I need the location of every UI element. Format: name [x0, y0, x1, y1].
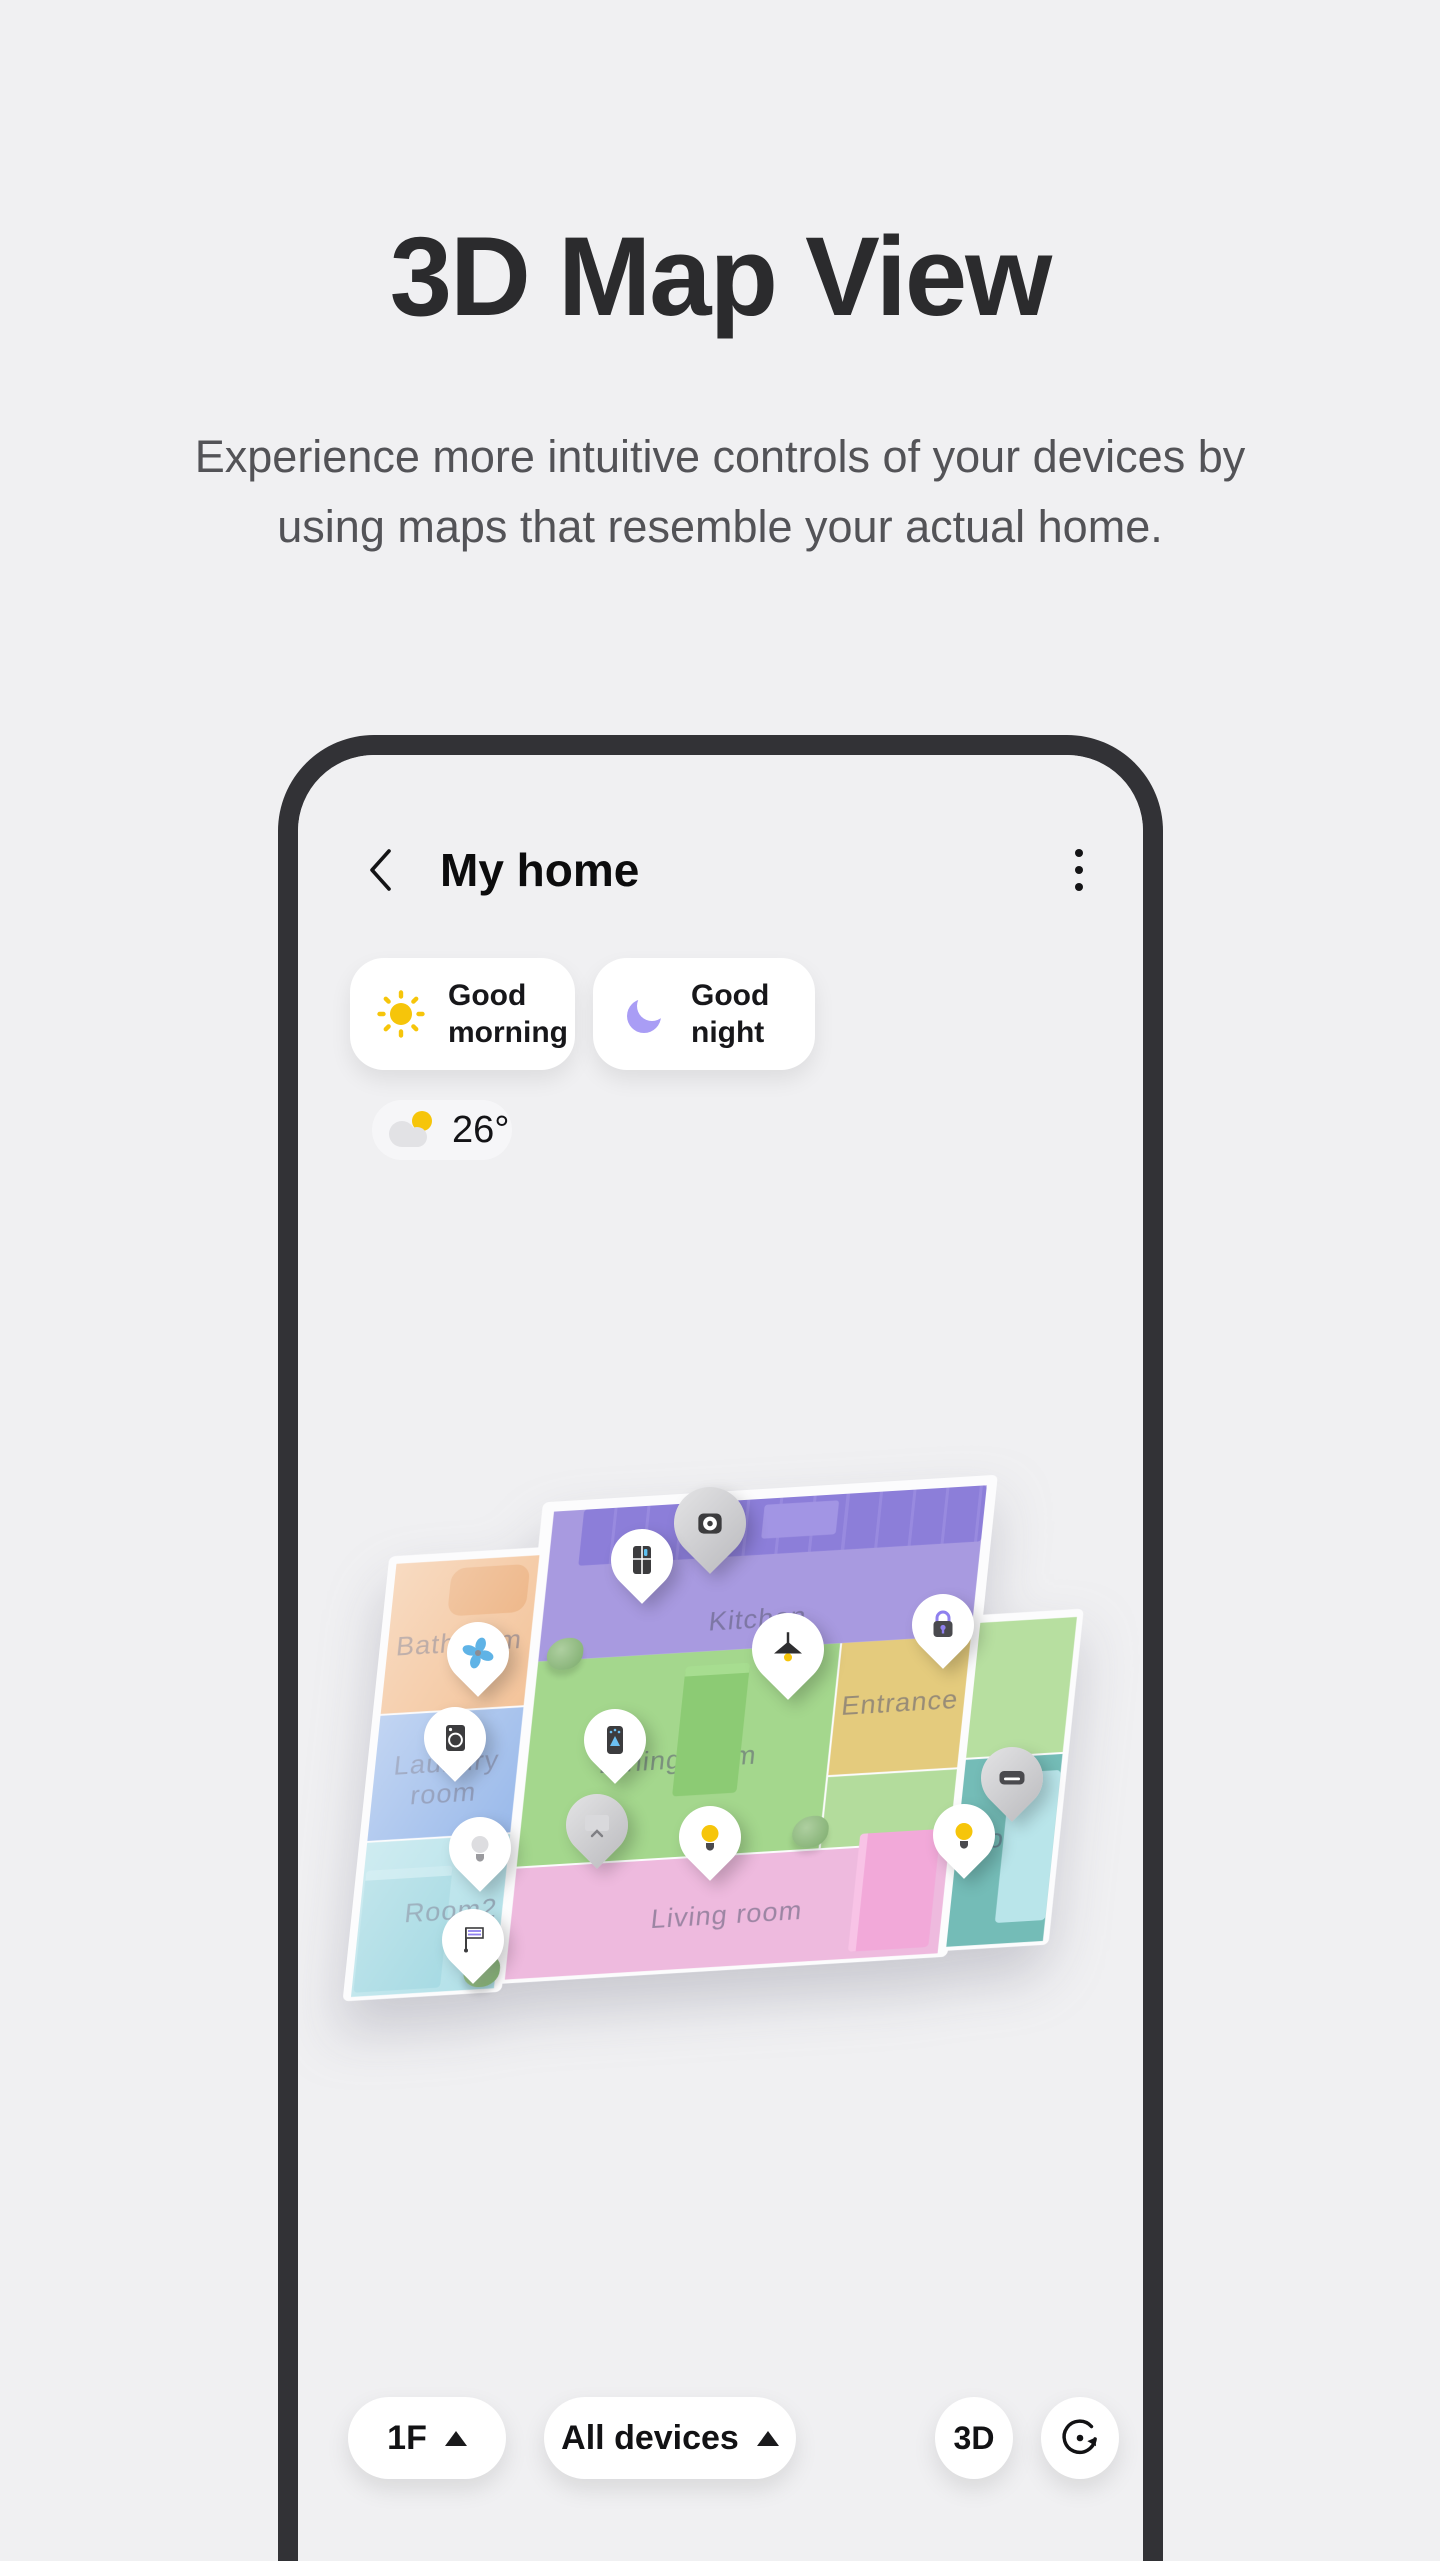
scene-good-morning-button[interactable]: Good morning — [350, 958, 575, 1070]
view-mode-label: 3D — [954, 2420, 995, 2457]
bathtub — [447, 1564, 531, 1617]
view-mode-button[interactable]: 3D — [935, 2397, 1013, 2479]
moon-icon — [619, 989, 669, 1039]
pendant-light-icon — [769, 1630, 807, 1668]
bulb-off-icon — [463, 1831, 497, 1865]
floor-label: 1F — [387, 2419, 427, 2458]
page-subtitle: Experience more intuitive controls of yo… — [135, 422, 1305, 562]
device-pin-bulb-on[interactable] — [679, 1806, 741, 1868]
phone-mockup: My home Good morning — [278, 735, 1163, 2561]
smart-lock-icon — [926, 1608, 960, 1642]
kitchen-sink — [761, 1500, 839, 1539]
page-title: 3D Map View — [0, 212, 1440, 341]
temperature-value: 26° — [452, 1109, 509, 1152]
device-pin-fan[interactable] — [447, 1622, 509, 1684]
air-purifier-icon — [598, 1723, 632, 1757]
sofa — [848, 1829, 941, 1952]
dining-table — [672, 1663, 750, 1797]
device-pin-bulb-on[interactable] — [933, 1804, 995, 1866]
device-pin-refrigerator[interactable] — [611, 1529, 673, 1591]
chevron-left-icon — [356, 841, 408, 899]
air-conditioner-icon — [995, 1761, 1029, 1795]
back-button[interactable] — [356, 841, 408, 899]
more-options-button[interactable] — [1056, 839, 1102, 901]
chevron-up-icon — [445, 2431, 467, 2446]
room-label: Entrance — [834, 1683, 966, 1722]
chevron-up-icon — [757, 2431, 779, 2446]
device-pin-air-purifier[interactable] — [584, 1709, 646, 1771]
washer-icon — [438, 1721, 472, 1755]
bulb-on-icon — [693, 1820, 727, 1854]
rotate-view-button[interactable] — [1041, 2397, 1119, 2479]
device-pin-camera[interactable] — [674, 1487, 746, 1559]
device-pin-flag-sensor[interactable] — [442, 1909, 504, 1971]
device-pin-air-conditioner[interactable] — [981, 1747, 1043, 1809]
device-filter-button[interactable]: All devices — [544, 2397, 796, 2479]
camera-icon — [692, 1505, 728, 1541]
bed — [353, 1866, 452, 1993]
fan-icon — [461, 1636, 495, 1670]
floor-selector-button[interactable]: 1F — [348, 2397, 506, 2479]
rotate-view-icon — [1058, 2416, 1102, 2460]
device-pin-smart-lock[interactable] — [912, 1594, 974, 1656]
home-title: My home — [440, 843, 639, 897]
scene-label: Good night — [691, 977, 811, 1051]
flag-sensor-icon — [456, 1923, 490, 1957]
scene-good-night-button[interactable]: Good night — [593, 958, 815, 1070]
device-pin-bulb-off[interactable] — [449, 1817, 511, 1879]
tv-icon — [580, 1808, 614, 1842]
device-filter-label: All devices — [561, 2419, 739, 2458]
weather-chip[interactable]: 26° — [372, 1100, 512, 1160]
bulb-on-icon — [947, 1818, 981, 1852]
sun-icon — [376, 989, 426, 1039]
device-pin-washer[interactable] — [424, 1707, 486, 1769]
scene-label: Good morning — [448, 977, 568, 1051]
phone-screen: My home Good morning — [298, 755, 1143, 2561]
refrigerator-icon — [625, 1543, 659, 1577]
room-right-top — [966, 1617, 1077, 1758]
device-pin-tv[interactable] — [566, 1794, 628, 1856]
kebab-menu-icon — [1056, 839, 1102, 901]
partly-cloudy-icon — [384, 1108, 442, 1152]
device-pin-pendant-light[interactable] — [752, 1613, 824, 1685]
